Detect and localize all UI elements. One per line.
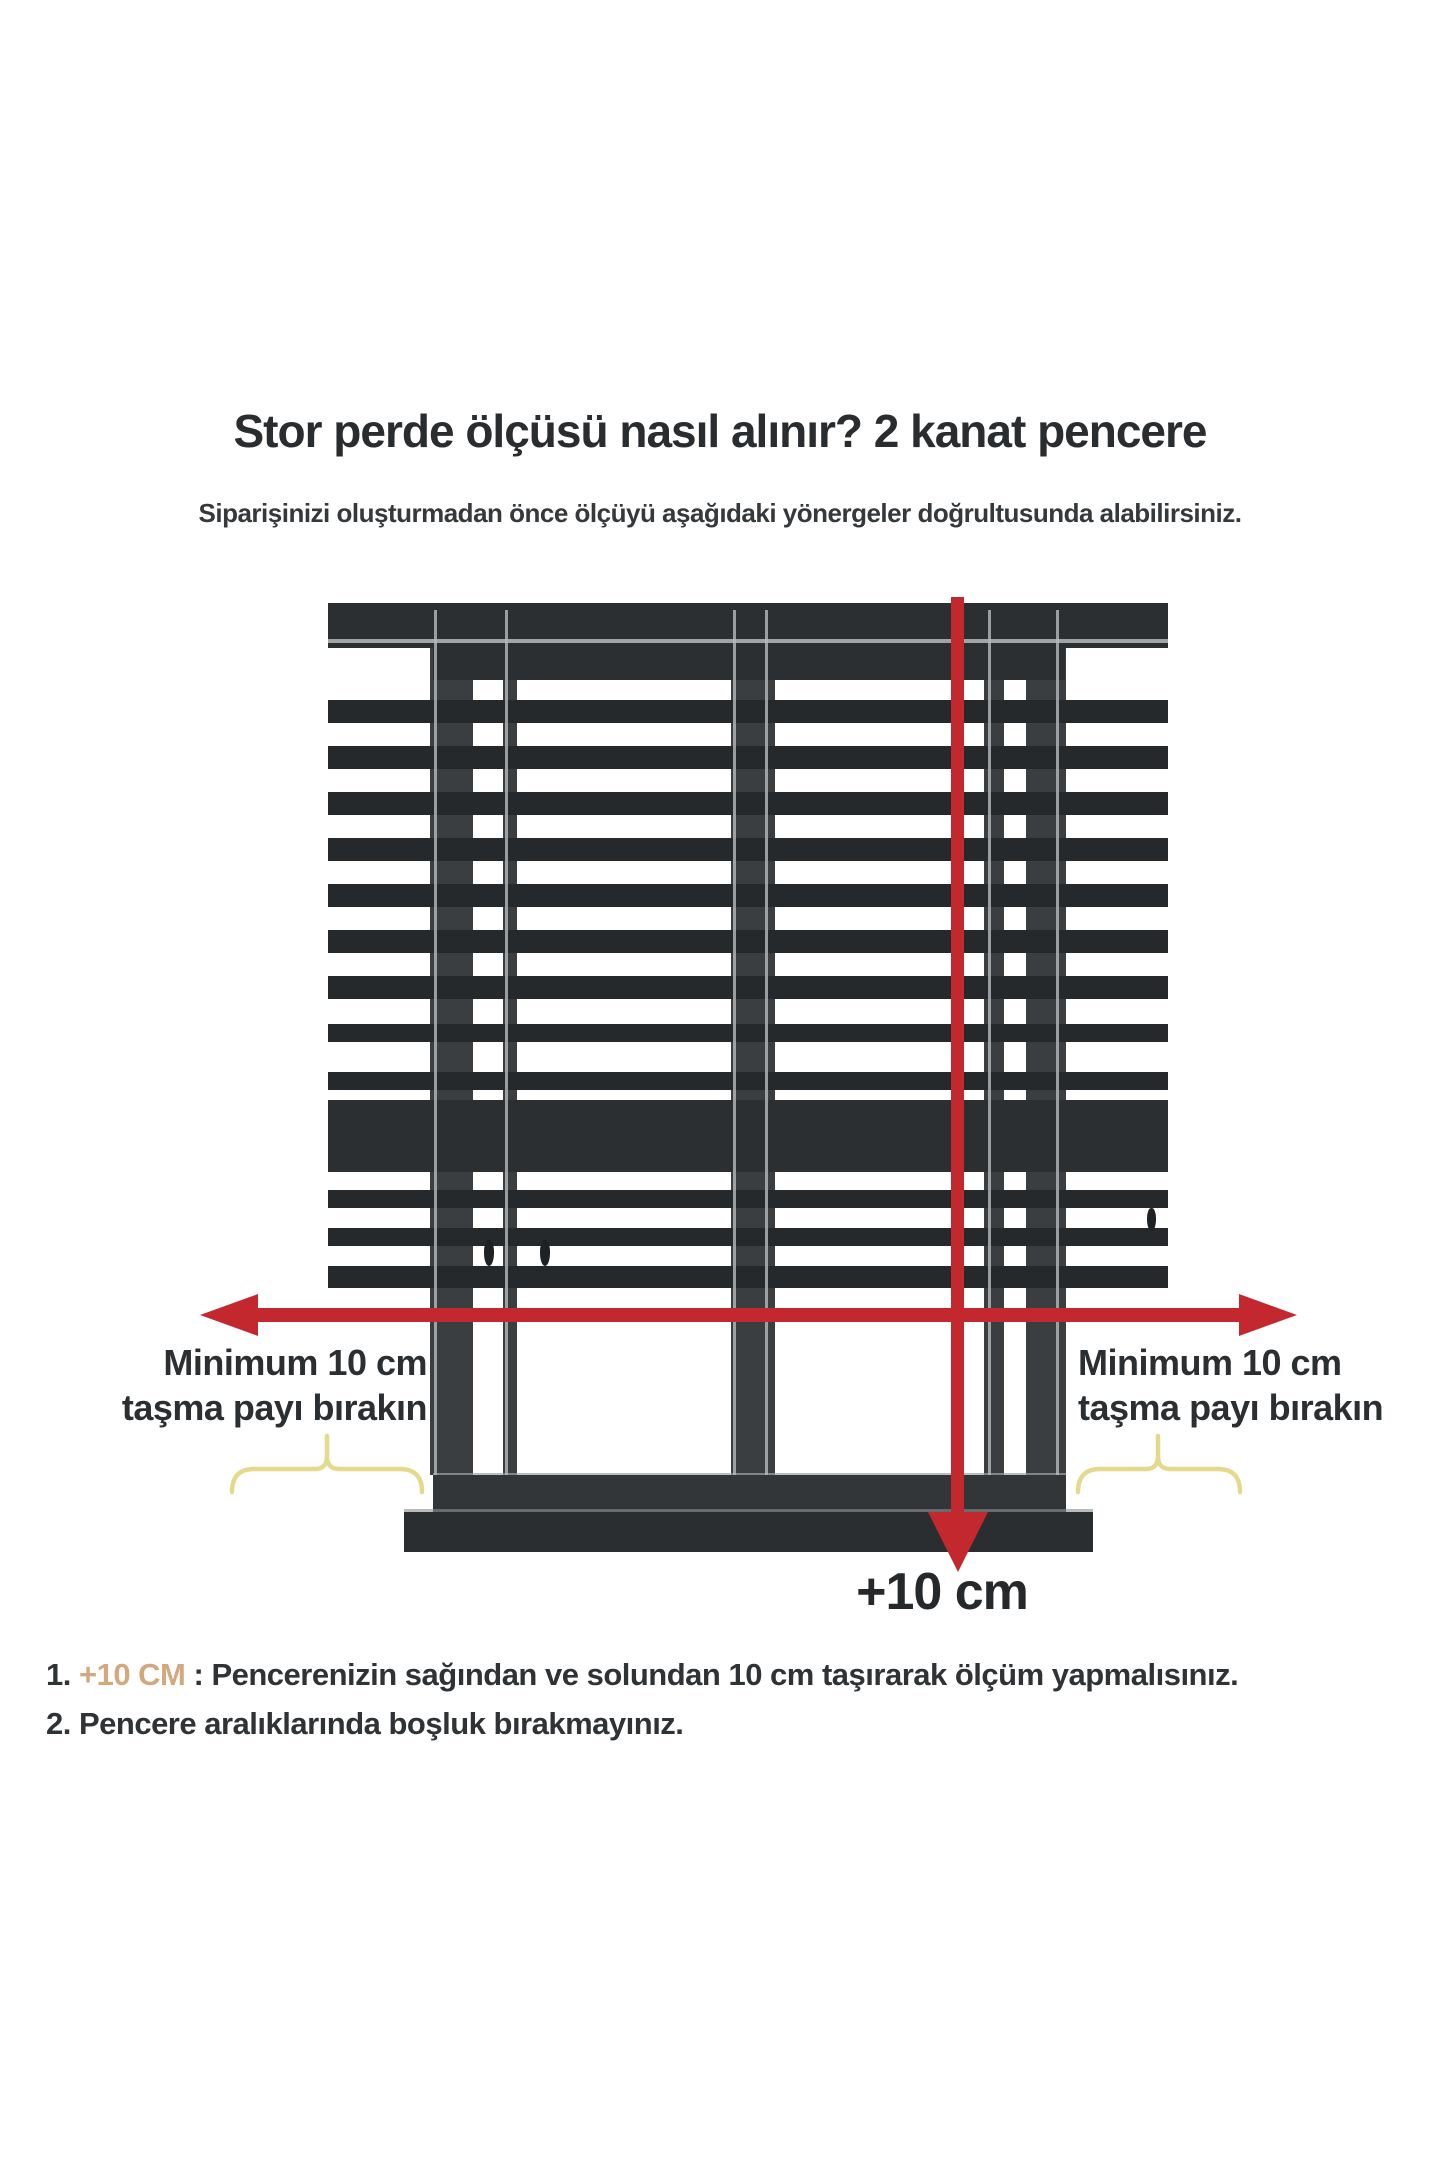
left-overhang-label-line1: Minimum 10 cm [122, 1340, 427, 1385]
note-1-number: 1. [46, 1657, 71, 1692]
note-1: 1. +10 CM : Pencerenizin sağından ve sol… [46, 1650, 1406, 1699]
blind-slat [328, 792, 1168, 815]
right-overhang-brace-icon [1078, 1436, 1240, 1492]
width-arrow-shaft [252, 1308, 1244, 1322]
frame-edge-line [1056, 610, 1059, 1475]
infographic-page: Stor perde ölçüsü nasıl alınır? 2 kanat … [0, 0, 1440, 2160]
page-title: Stor perde ölçüsü nasıl alınır? 2 kanat … [0, 404, 1440, 458]
right-overhang-label: Minimum 10 cm taşma payı bırakın [1078, 1340, 1383, 1430]
blind-slat [328, 1190, 1168, 1208]
note-1-text: : Pencerenizin sağından ve solundan 10 c… [185, 1657, 1238, 1692]
left-overhang-label: Minimum 10 cm taşma payı bırakın [122, 1340, 427, 1430]
frame-edge-line [434, 610, 437, 1475]
width-arrow-left-head-icon [200, 1294, 258, 1336]
blind-slat [328, 700, 1168, 723]
note-2: 2. Pencere aralıklarında boşluk bırakmay… [46, 1699, 1406, 1748]
blind-slat [328, 1072, 1168, 1090]
note-2-text: Pencere aralıklarında boşluk bırakmayını… [71, 1706, 684, 1741]
window-sill [404, 1512, 1093, 1552]
width-arrow-right-head-icon [1239, 1294, 1297, 1336]
frame-edge-line [505, 610, 508, 1475]
note-2-number: 2. [46, 1706, 71, 1741]
blind-slat [328, 746, 1168, 769]
blind-middle-rail [328, 1100, 1168, 1172]
window-frame-post [984, 610, 1004, 1475]
instruction-notes: 1. +10 CM : Pencerenizin sağından ve sol… [46, 1650, 1406, 1748]
cord-tassel-icon [540, 1240, 550, 1266]
frame-edge-line [988, 610, 991, 1475]
window-frame-post [731, 610, 775, 1475]
blind-slat [328, 1024, 1168, 1042]
headrail-highlight-line [328, 639, 1168, 643]
left-overhang-label-line2: taşma payı bırakın [122, 1385, 427, 1430]
left-overhang-brace-icon [232, 1436, 422, 1492]
blind-slat [328, 884, 1168, 907]
blind-slat [328, 976, 1168, 999]
cord-tassel-icon [1147, 1208, 1156, 1231]
frame-edge-line [733, 610, 736, 1475]
cord-tassel-icon [484, 1240, 494, 1266]
window-bottom-frame [433, 1475, 1066, 1512]
page-subtitle: Siparişinizi oluşturmadan önce ölçüyü aş… [0, 498, 1440, 529]
blind-slat [328, 1266, 1168, 1288]
blind-slat [328, 930, 1168, 953]
blind-slat [328, 1228, 1168, 1246]
window-frame-post [1026, 610, 1066, 1475]
right-overhang-label-line2: taşma payı bırakın [1078, 1385, 1383, 1430]
right-overhang-label-line1: Minimum 10 cm [1078, 1340, 1383, 1385]
frame-edge-line [765, 610, 768, 1475]
bottom-measure-label: +10 cm [742, 1562, 1142, 1622]
window-top-frame [433, 648, 1065, 680]
blind-slat [328, 838, 1168, 861]
note-1-highlight: +10 CM [71, 1657, 186, 1692]
height-arrow-shaft [951, 597, 964, 1512]
